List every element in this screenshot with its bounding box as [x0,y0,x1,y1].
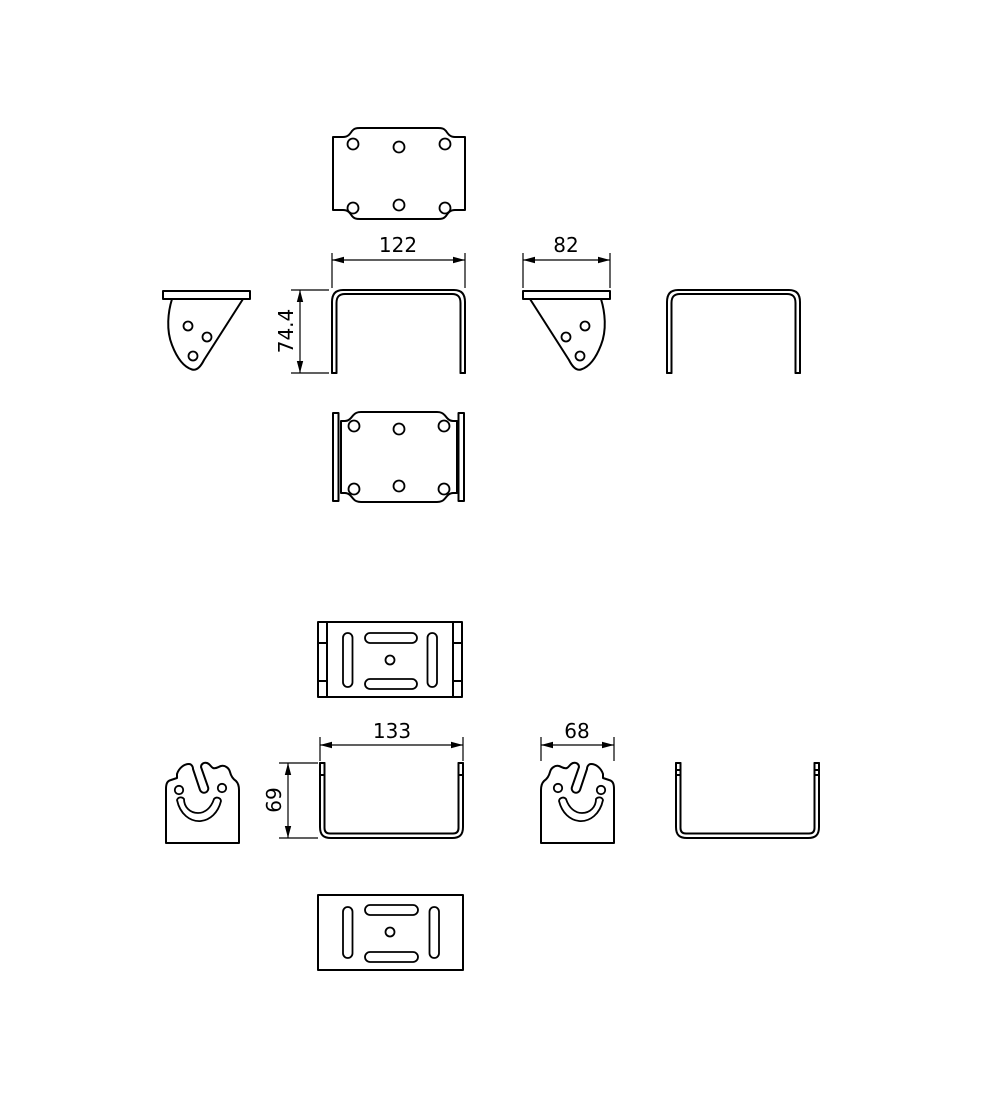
part1-front-view [332,290,465,373]
hole [184,322,193,331]
slot-vertical-right [428,633,438,687]
part2-front-view [320,763,463,838]
part2-rear-view [676,763,819,838]
hole [439,421,450,432]
dim-text-part2-depth: 68 [564,719,589,743]
dim-text-part2-width: 133 [373,719,411,743]
dim-text-part1-depth: 82 [553,233,578,257]
dim-text-part1-height: 74.4 [274,309,298,354]
dim-part2-depth: 68 [541,719,614,761]
arrowhead [453,257,465,263]
slot-vertical-right [430,907,440,958]
part2-bottom-view [318,895,463,970]
flange-notch-ticks [318,643,462,681]
channel-outer [320,763,463,838]
flange-rail-left [333,413,339,501]
eye-hole [218,784,226,792]
slot-horizontal-bottom [365,952,418,962]
hole [348,139,359,150]
hole [189,352,198,361]
part1-side-view-left [163,291,250,370]
gusset-outline [168,299,243,370]
arrowhead [297,290,303,302]
dim-text-part2-height: 69 [262,787,286,812]
dim-part2-height: 69 [262,763,318,838]
arrowhead [297,361,303,373]
part1-side-view-right [523,291,610,370]
dim-part1-height: 74.4 [274,290,329,373]
slot-vertical-left [343,633,353,687]
channel-outer [332,290,465,373]
hole [394,200,405,211]
dim-part1-width: 122 [332,233,465,288]
slot-horizontal-top [365,905,418,915]
hole [348,203,359,214]
part1-bottom-view [333,412,464,502]
hole [439,484,450,495]
hole [203,333,212,342]
part2-side-view-left [166,763,239,843]
arrowhead [602,742,614,748]
part1-rear-view [667,290,800,373]
arrowhead [332,257,344,263]
flange-rail-right [459,413,465,501]
hole [440,203,451,214]
slot-vertical-left [343,907,353,958]
center-hole [386,928,395,937]
arrowhead [451,742,463,748]
plate-outline [318,895,463,970]
channel-inner [325,763,459,834]
hole [394,481,405,492]
dim-part2-width: 133 [320,719,463,761]
arrowhead [541,742,553,748]
technical-drawing: 122 82 74.4 [0,0,1000,1100]
hole [349,484,360,495]
hole [394,424,405,435]
arrowhead [285,826,291,838]
drawing-canvas: 122 82 74.4 [0,0,1000,1100]
eye-hole [175,786,183,794]
arrowhead [523,257,535,263]
center-hole [386,656,395,665]
extension-line [523,253,610,288]
dim-part1-depth: 82 [523,233,610,288]
arrowhead [320,742,332,748]
arrowhead [285,763,291,775]
hole [394,142,405,153]
part2-side-view-right [541,763,614,843]
part2-top-view [318,622,462,697]
slot-horizontal-bottom [365,679,417,689]
hole [440,139,451,150]
arrowhead [598,257,610,263]
extension-line [332,253,465,288]
slot-horizontal-top [365,633,417,643]
flange-outline [163,291,250,299]
smile-slot [177,797,221,821]
plate-outline [341,412,457,502]
dim-text-part1-width: 122 [379,233,417,257]
channel-inner [337,294,461,373]
part1-top-view [333,128,465,219]
hole [349,421,360,432]
